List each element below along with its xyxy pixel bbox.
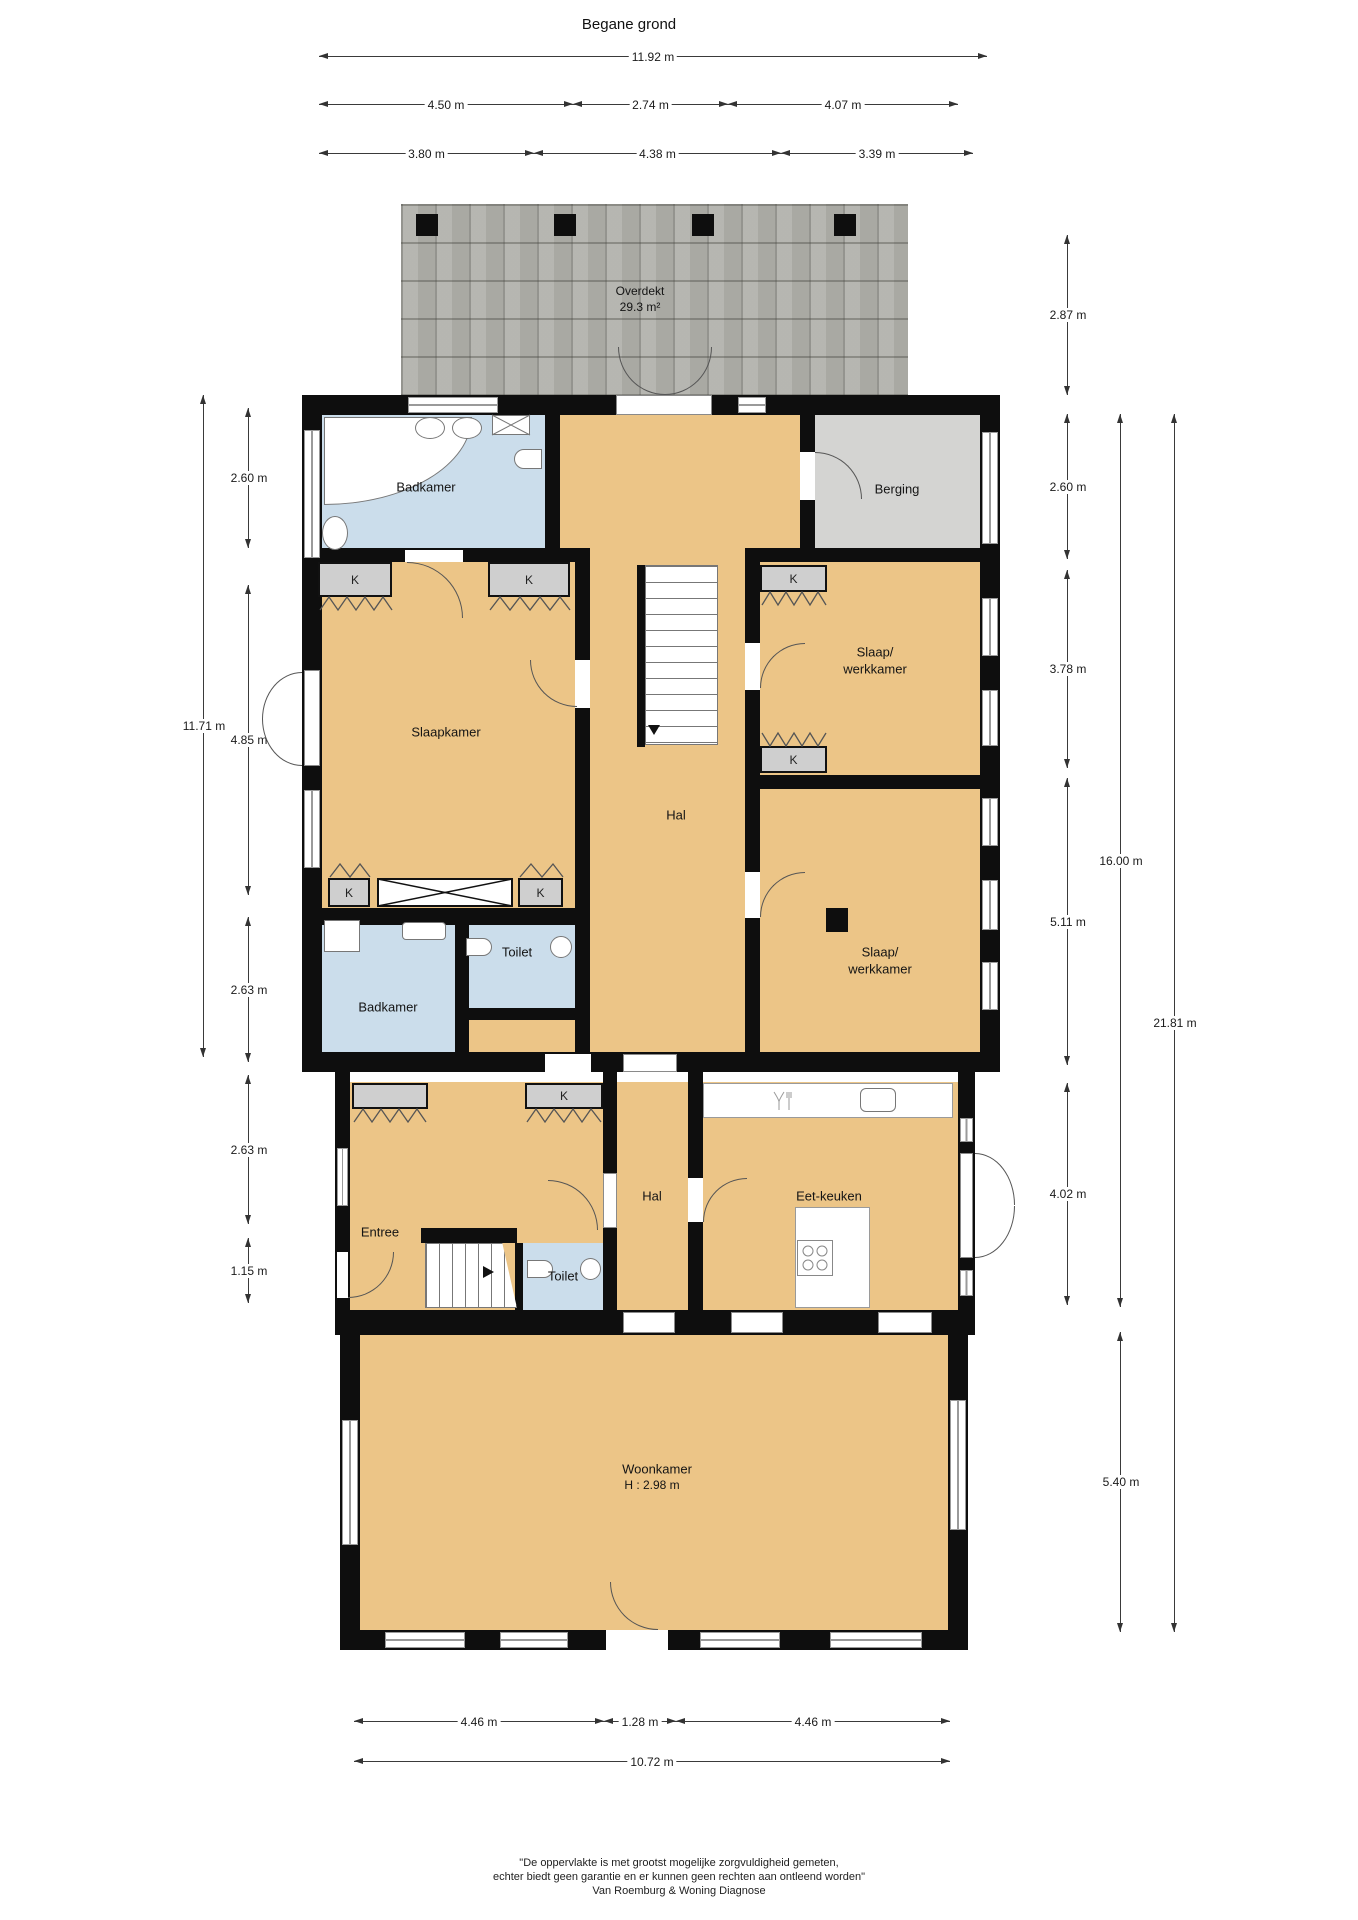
dim-label: 11.71 m bbox=[180, 719, 228, 733]
page-title: Begane grond bbox=[582, 16, 676, 33]
window bbox=[982, 962, 998, 1010]
dim-label: 4.07 m bbox=[822, 98, 865, 112]
room-label-toilet-1: Toilet bbox=[502, 945, 532, 960]
door-arc bbox=[262, 672, 302, 719]
wall-berging-bottom bbox=[745, 548, 1000, 562]
toilet-fixture bbox=[322, 516, 348, 550]
closet-label: K bbox=[345, 886, 353, 900]
french-door-opening bbox=[304, 670, 320, 766]
room-label-toilet-2: Toilet bbox=[548, 1269, 578, 1284]
closet: K bbox=[488, 562, 570, 597]
sink bbox=[402, 922, 446, 940]
double-door-opening bbox=[616, 395, 712, 415]
interior-window bbox=[878, 1312, 932, 1333]
closet: K bbox=[318, 562, 392, 597]
dim-label: 4.46 m bbox=[792, 1715, 835, 1729]
roof-column bbox=[834, 214, 856, 236]
dim-label: 2.63 m bbox=[228, 1143, 271, 1157]
door-opening bbox=[688, 1178, 703, 1222]
flue-block bbox=[826, 908, 848, 932]
footer-disclaimer: "De oppervlakte is met grootst mogelijke… bbox=[0, 1856, 1358, 1898]
dim-label: 2.74 m bbox=[629, 98, 672, 112]
sink bbox=[415, 417, 445, 439]
window bbox=[960, 1270, 973, 1296]
toilet-fixture bbox=[514, 449, 542, 469]
window bbox=[337, 1148, 348, 1206]
sink bbox=[580, 1258, 601, 1280]
dim-label: 3.39 m bbox=[856, 147, 899, 161]
hal-opening bbox=[623, 1054, 677, 1072]
folding-door bbox=[354, 1109, 426, 1122]
dim-label: 16.00 m bbox=[1096, 854, 1145, 868]
dim-label: 3.80 m bbox=[405, 147, 448, 161]
closet-label: K bbox=[525, 573, 533, 587]
interior-window bbox=[731, 1312, 783, 1333]
room-label-hal-2: Hal bbox=[642, 1189, 662, 1204]
window bbox=[960, 1118, 973, 1142]
dim-label: 2.60 m bbox=[1047, 480, 1090, 494]
window bbox=[982, 798, 998, 846]
door-arc bbox=[975, 1153, 1015, 1205]
wall-stairwell bbox=[637, 565, 645, 747]
roof-column bbox=[416, 214, 438, 236]
dim-label: 2.60 m bbox=[228, 471, 271, 485]
meter-cupboard bbox=[352, 1083, 428, 1109]
room-label-entree: Entree bbox=[361, 1225, 399, 1240]
folding-door bbox=[490, 597, 570, 610]
french-door-opening bbox=[960, 1153, 973, 1258]
dim-label: 1.15 m bbox=[228, 1264, 271, 1278]
door-opening bbox=[606, 1630, 668, 1650]
window bbox=[342, 1420, 358, 1545]
window bbox=[700, 1632, 780, 1648]
roof-column bbox=[554, 214, 576, 236]
window bbox=[950, 1400, 966, 1530]
door-arc bbox=[975, 1206, 1015, 1258]
door-opening bbox=[545, 1054, 591, 1072]
shower bbox=[324, 920, 360, 952]
wardrobe bbox=[377, 878, 513, 907]
footer-line-1: "De oppervlakte is met grootst mogelijke… bbox=[0, 1856, 1358, 1870]
front-door-opening bbox=[337, 1252, 348, 1298]
sink bbox=[452, 417, 482, 439]
dim-label: 5.11 m bbox=[1047, 915, 1089, 929]
dim-label: 4.38 m bbox=[636, 147, 679, 161]
shower bbox=[492, 415, 530, 435]
dim-label: 4.46 m bbox=[458, 1715, 501, 1729]
window bbox=[500, 1632, 568, 1648]
hal-woonkamer-opening bbox=[623, 1312, 675, 1333]
room-label-slaapwerkkamer-2b: werkkamer bbox=[848, 962, 912, 977]
room-label-badkamer-2: Badkamer bbox=[358, 1000, 417, 1015]
staircase-upper bbox=[645, 565, 718, 745]
dim-label: 3.78 m bbox=[1047, 662, 1090, 676]
folding-door bbox=[320, 597, 392, 610]
folding-door bbox=[520, 864, 563, 877]
wall-stairs-toilet bbox=[515, 1243, 523, 1310]
wall-stairs-top bbox=[421, 1228, 517, 1243]
window bbox=[830, 1632, 922, 1648]
closet-label: K bbox=[789, 572, 797, 586]
closet: K bbox=[518, 878, 563, 907]
window bbox=[304, 790, 320, 868]
dim-label: 21.81 m bbox=[1150, 1016, 1199, 1030]
room-label-hal-1: Hal bbox=[666, 808, 686, 823]
window bbox=[982, 690, 998, 746]
window bbox=[385, 1632, 465, 1648]
closet-label: K bbox=[536, 886, 544, 900]
room-label-woonkamer: Woonkamer bbox=[622, 1462, 692, 1477]
dim-label: 4.50 m bbox=[425, 98, 468, 112]
room-label-slaapwerkkamer-1b: werkkamer bbox=[843, 662, 907, 677]
stairs-direction-arrow bbox=[483, 1266, 494, 1278]
sink bbox=[550, 936, 572, 958]
room-label-slaapkamer: Slaapkamer bbox=[411, 725, 480, 740]
closet: K bbox=[328, 878, 370, 907]
room-label-berging: Berging bbox=[875, 482, 920, 497]
footer-line-2: echter biedt geen garantie en er kunnen … bbox=[0, 1870, 1358, 1884]
dim-label: 2.87 m bbox=[1047, 308, 1090, 322]
wall-toilet1-bottom bbox=[469, 1008, 590, 1020]
staircase-entree bbox=[425, 1243, 517, 1308]
kitchen-sink bbox=[860, 1088, 896, 1112]
folding-door bbox=[762, 733, 826, 746]
toilet-fixture bbox=[466, 938, 492, 956]
door-opening bbox=[575, 660, 590, 708]
door-opening bbox=[745, 872, 760, 918]
wall-werkkamers-divider bbox=[760, 775, 1000, 789]
wall-slaapkamer-right bbox=[575, 548, 590, 1052]
dim-label: 10.72 m bbox=[627, 1755, 676, 1769]
roof-column bbox=[692, 214, 714, 236]
closet-label: K bbox=[351, 573, 359, 587]
footer-line-3: Van Roemburg & Woning Diagnose bbox=[0, 1884, 1358, 1898]
interior-opening bbox=[603, 1173, 617, 1228]
dishwasher-icon bbox=[768, 1088, 796, 1114]
door-opening bbox=[405, 550, 463, 562]
floor-plan-page: Begane grond 11.92 m 4.50 m 2.74 m 4.07 … bbox=[0, 0, 1358, 1920]
roof-label: Overdekt bbox=[616, 284, 665, 298]
room-label-slaapwerkkamer-1: Slaap/ bbox=[857, 645, 894, 660]
folding-door bbox=[527, 1109, 601, 1122]
closet-label: K bbox=[560, 1089, 568, 1103]
stove-burners bbox=[797, 1240, 833, 1276]
closet-label: K bbox=[789, 753, 797, 767]
stairs-direction-arrow bbox=[648, 725, 660, 735]
wall-werkkamers-left bbox=[745, 548, 760, 1072]
closet: K bbox=[525, 1083, 603, 1109]
woonkamer-height: H : 2.98 m bbox=[624, 1478, 679, 1492]
closet: K bbox=[760, 565, 827, 592]
closet: K bbox=[760, 746, 827, 773]
room-label-slaapwerkkamer-2: Slaap/ bbox=[862, 945, 899, 960]
wall-badkamer1-right bbox=[545, 415, 560, 562]
dim-label: 5.40 m bbox=[1100, 1475, 1143, 1489]
dim-label: 4.02 m bbox=[1047, 1187, 1090, 1201]
room-label-eetkeuken: Eet-keuken bbox=[796, 1189, 862, 1204]
kitchen-counter bbox=[703, 1083, 953, 1118]
door-opening bbox=[800, 452, 815, 500]
dim-label: 2.63 m bbox=[228, 983, 271, 997]
dim-label: 11.92 m bbox=[629, 50, 677, 64]
door-arc bbox=[262, 719, 302, 766]
window bbox=[982, 432, 998, 544]
window bbox=[408, 397, 498, 413]
folding-door bbox=[330, 864, 370, 877]
window bbox=[738, 397, 766, 413]
window bbox=[982, 880, 998, 930]
door-opening bbox=[745, 643, 760, 690]
window bbox=[982, 598, 998, 656]
dim-label: 1.28 m bbox=[619, 1715, 662, 1729]
window bbox=[304, 430, 320, 558]
room-label-badkamer-1: Badkamer bbox=[396, 480, 455, 495]
folding-door bbox=[762, 592, 826, 605]
roof-area: 29.3 m² bbox=[620, 300, 661, 314]
